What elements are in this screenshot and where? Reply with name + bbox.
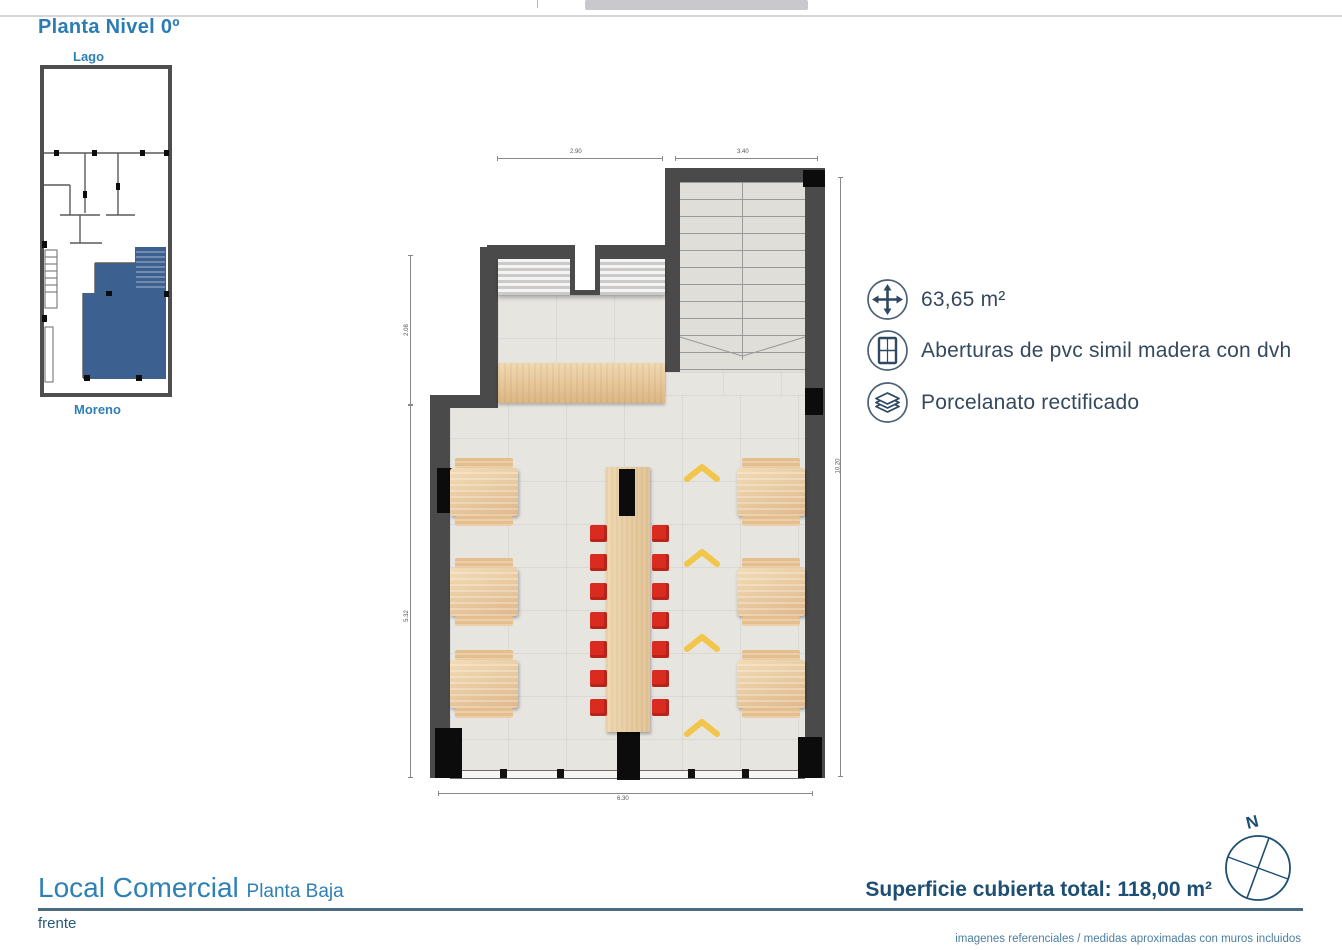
footer-subtitle: Planta Baja [247,881,344,902]
layers-icon [866,381,909,424]
bench [742,516,800,526]
bench [742,558,800,568]
counter-column [619,469,635,516]
stool [590,612,607,629]
page-title: Planta Nivel 0º [38,16,180,39]
column-top-right [803,170,825,187]
direction-chevron-icon [682,718,722,738]
area-value: 63,65 m² [921,288,1005,312]
dining-table [737,650,805,718]
service-bar [498,363,665,403]
wall-stair-left [665,168,680,372]
dining-table [450,458,518,526]
annotation-openings: Aberturas de pvc simil madera con dvh [866,329,1291,372]
dim-label: 2.90 [570,149,582,155]
compass-north-label: N [1244,812,1261,833]
pillar-center [617,730,640,780]
pillar-right [798,737,822,778]
stool [652,641,669,658]
table-top [737,568,805,616]
dim-line [410,405,411,778]
table-top [737,468,805,516]
pillar-left [435,728,462,778]
keyplan-top-label: Lago [73,49,104,64]
dim-line [840,177,841,777]
dim-line [675,158,818,159]
stool [590,525,607,542]
dim-line [438,793,813,794]
bench [742,458,800,468]
key-plan [40,65,172,397]
wall-stair-top [665,168,825,182]
dining-table [450,650,518,718]
dim-line [410,255,411,405]
compass-icon: N [1218,808,1303,908]
footer-title-text: Local Comercial [38,872,239,903]
top-strip [0,0,1342,17]
floor-landing [665,372,805,395]
bench [455,558,513,568]
floor-alcove [498,295,665,370]
dining-table [737,458,805,526]
annotation-flooring: Porcelanato rectificado [866,381,1139,424]
table-top [450,568,518,616]
wall-left [430,395,450,778]
stool [590,699,607,716]
bench [742,616,800,626]
table-top [450,660,518,708]
dim-label: 2.08 [404,324,410,336]
stool [590,670,607,687]
annotation-area: 63,65 m² [866,278,1005,321]
dim-label: 5.32 [404,610,410,622]
direction-chevron-icon [682,463,722,483]
bench [455,650,513,660]
wall-alcove-left [480,247,498,408]
mullion [688,769,695,778]
stool [652,670,669,687]
dim-label: 10.20 [836,458,842,473]
stool [590,641,607,658]
wall-right [805,168,825,778]
stool [652,554,669,571]
disclaimer: imagenes referenciales / medidas aproxim… [955,933,1301,945]
stool [652,525,669,542]
move-arrows-icon [866,278,909,321]
stair-divider [742,182,743,360]
bench [742,708,800,718]
direction-chevron-icon [682,548,722,568]
wall-niche [570,245,600,295]
total-area: Superficie cubierta total: 118,00 m² [865,878,1212,902]
dining-table [737,558,805,626]
stool [590,554,607,571]
window-icon [866,329,909,372]
stool [590,583,607,600]
stool [652,583,669,600]
bench [455,516,513,526]
openings-label: Aberturas de pvc simil madera con dvh [921,339,1291,363]
dim-label: 6.30 [617,796,629,802]
footer-divider [38,908,1303,911]
keyplan-bottom-label: Moreno [74,402,121,417]
top-tick [537,0,538,8]
table-top [737,660,805,708]
table-top [450,468,518,516]
mullion [742,769,749,778]
footer-title: Local Comercial Planta Baja [38,872,344,904]
dim-label: 3.40 [737,149,749,155]
floor-plan: 2.90 3.40 2.08 5.32 10.20 6.30 [395,145,860,815]
dim-line [497,158,663,159]
bench [742,650,800,660]
stool [652,699,669,716]
wall-opening-right [805,388,823,415]
flooring-label: Porcelanato rectificado [921,391,1139,415]
top-scrollbar-thumb[interactable] [585,0,808,10]
mullion [500,769,507,778]
mullion [557,769,564,778]
direction-chevron-icon [682,633,722,653]
bench [455,458,513,468]
bench [455,616,513,626]
stool [652,612,669,629]
dining-table [450,558,518,626]
bench [455,708,513,718]
front-label: frente [38,915,76,932]
